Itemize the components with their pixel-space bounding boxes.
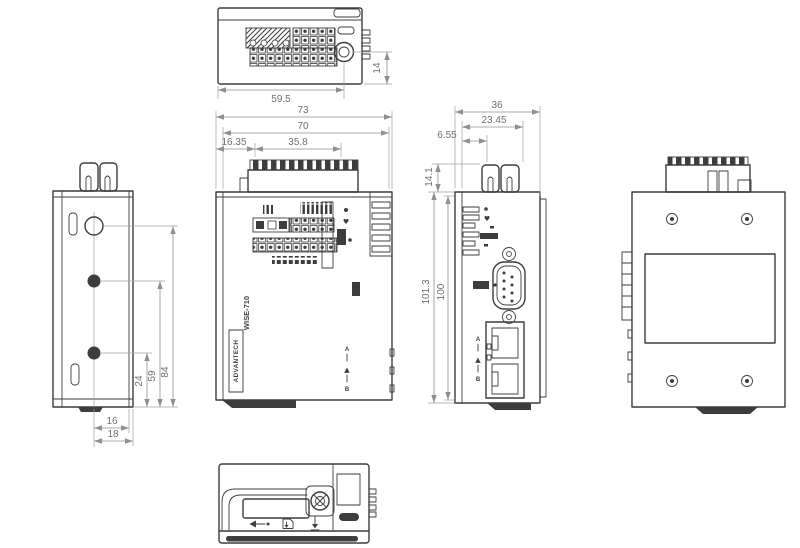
vent-slots — [372, 202, 390, 252]
terminal-plug-profile — [482, 165, 519, 192]
mounting-plate — [645, 254, 775, 343]
serial-port-db9 — [493, 248, 525, 324]
triangle-glyph: ▲ — [344, 366, 350, 374]
dim-label: 84 — [160, 366, 171, 378]
connector-tabs — [362, 30, 370, 59]
front-view: ♥ WISE-710 ADVANTECH A ▲ B 73 — [216, 105, 394, 408]
dip-switch-cluster — [253, 202, 337, 264]
dim-label: 36 — [491, 100, 503, 111]
dim-terminal-width: 35.8 — [255, 137, 341, 157]
right-body — [632, 192, 785, 407]
eth-a-label: A — [476, 337, 481, 343]
reset-slot — [338, 27, 354, 34]
heart-glyph: ♥ — [343, 218, 349, 226]
led-indicator-cluster: ♥ — [337, 208, 360, 296]
ethernet-port-a — [492, 328, 518, 358]
left-body — [53, 191, 133, 407]
top-view: 59.5 14 — [218, 8, 392, 105]
din-rail-clip — [78, 407, 103, 412]
led-slots: ♥ — [463, 207, 498, 255]
dim-center-outer: 18 — [94, 409, 133, 446]
dim-label: 23.45 — [481, 115, 506, 126]
reset-slot — [339, 513, 359, 521]
sim-card-slot — [243, 499, 309, 518]
rail-a-label: A — [345, 347, 350, 353]
sd-slot — [473, 281, 489, 289]
drawing-canvas: 59.5 14 — [0, 0, 800, 548]
dim-label: 24 — [134, 375, 145, 387]
triangle-glyph: ▲ — [475, 356, 481, 364]
din-rail-clip — [487, 403, 531, 410]
dim-label: 14.1 — [424, 167, 435, 187]
dim-label: 14 — [372, 62, 383, 74]
ethernet-port-b — [492, 364, 518, 394]
dim-label: 16.35 — [221, 137, 246, 148]
heart-glyph: ♥ — [484, 215, 490, 223]
dim-terminal-depth: 23.45 — [462, 115, 523, 188]
din-rail-clip — [226, 536, 358, 542]
top-handle — [334, 9, 360, 17]
top-connector-profile — [666, 157, 751, 192]
sim-card-icon — [283, 519, 293, 529]
ethernet-ports — [486, 322, 524, 398]
terminal-strip — [250, 48, 337, 66]
dim-label: 18 — [107, 429, 119, 440]
terminal-block-hatched — [246, 28, 290, 48]
dim-label: 59.5 — [271, 94, 291, 105]
bottom-view — [219, 464, 376, 543]
mount-slot-top — [69, 213, 77, 235]
rail-b-label: B — [345, 387, 350, 393]
dim-label: 100 — [436, 283, 447, 300]
right-view — [622, 157, 785, 414]
left-view: 84 59 24 16 18 — [53, 163, 178, 447]
dim-label: 35.8 — [288, 137, 308, 148]
antenna-connector-icon — [311, 492, 329, 510]
back-plate — [540, 199, 546, 397]
brand-label: ADVANTECH — [233, 340, 240, 383]
dim-label: 59 — [147, 370, 158, 382]
arrow-down-icon — [311, 517, 319, 530]
recess-inner — [229, 495, 307, 531]
screw-hole-mid — [88, 275, 101, 288]
dim-label: 101.3 — [421, 279, 432, 304]
terminal-block — [293, 28, 335, 48]
din-rail-clip — [695, 407, 758, 414]
dim-terminal-offset: 16.35 — [216, 137, 255, 157]
arrow-left-icon — [250, 521, 270, 528]
top-terminal-block — [240, 160, 358, 192]
screw-holes — [667, 214, 753, 387]
din-rail-clip — [222, 400, 296, 408]
dim-label: 70 — [297, 121, 309, 132]
dim-body-height: 100 — [436, 196, 455, 400]
dim-antenna-offset: 14 — [353, 52, 392, 84]
model-label: WISE-710 — [242, 296, 251, 330]
side-view: ♥ A — [424, 100, 546, 410]
io-opening — [337, 474, 360, 505]
mount-slot-bottom — [71, 364, 79, 385]
dim-label: 16 — [106, 416, 118, 427]
dim-label: 6.55 — [437, 130, 457, 141]
dimensional-drawing: 59.5 14 — [0, 0, 800, 548]
connector-edge-profile — [622, 252, 632, 382]
screw-hole-low — [88, 347, 101, 360]
terminal-plug-profile — [80, 163, 117, 191]
eth-b-label: B — [476, 377, 481, 383]
rail-lock-marking: A ▲ B — [344, 347, 350, 393]
eth-ab-marking: A ▲ B — [475, 337, 481, 383]
dim-terminal-height: 14.1 — [424, 164, 480, 192]
dim-label: 73 — [297, 105, 309, 116]
connector-tabs — [369, 489, 376, 517]
advantech-logo: ADVANTECH — [229, 330, 243, 392]
